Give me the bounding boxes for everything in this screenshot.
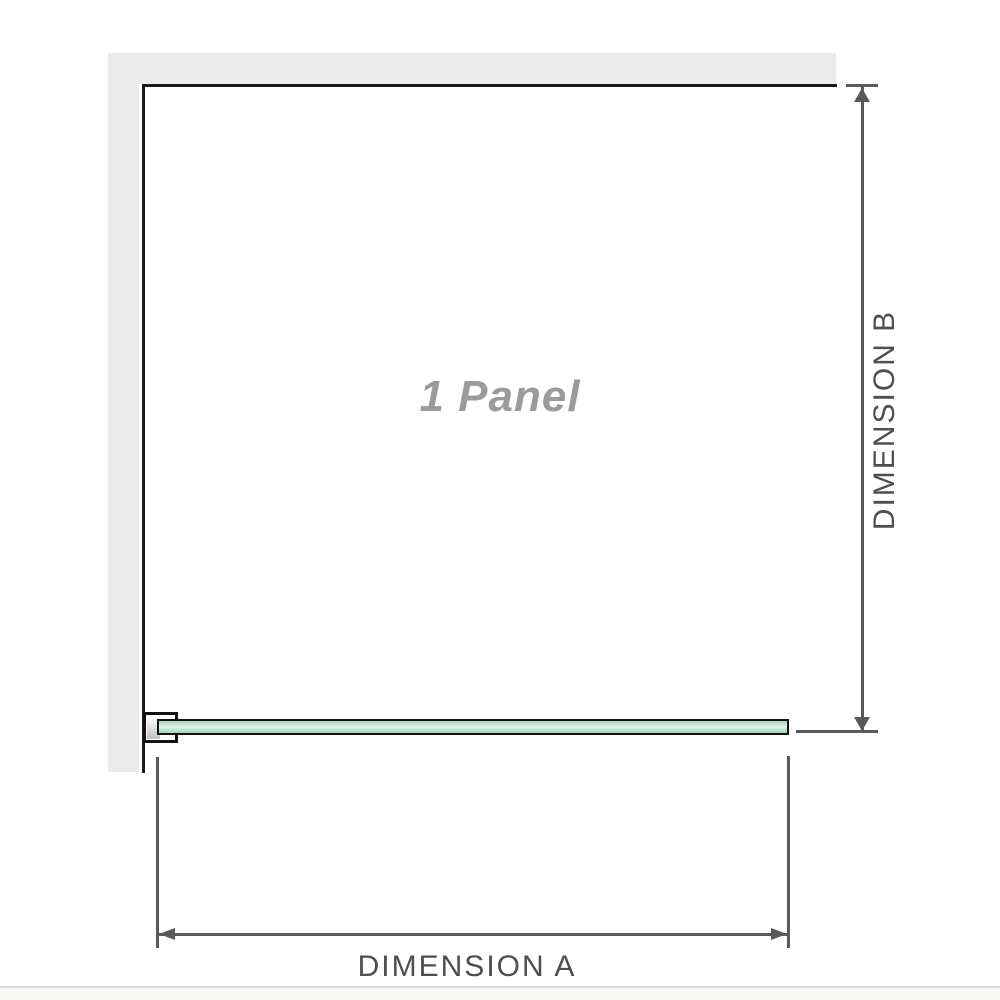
panel-frame-top-edge bbox=[142, 84, 837, 87]
dimension-a-extension-right bbox=[787, 756, 790, 948]
dimension-a-label: DIMENSION A bbox=[317, 950, 617, 984]
arrow-left-icon bbox=[159, 928, 175, 940]
wall-left-bar bbox=[108, 53, 139, 772]
footer-strip bbox=[0, 988, 1000, 1000]
panel-dimension-diagram: 1 Panel DIMENSION B DIMENSION A bbox=[0, 0, 1000, 1000]
wall-top-bar bbox=[108, 53, 836, 84]
dimension-a-line bbox=[159, 933, 788, 936]
arrow-down-icon bbox=[854, 717, 870, 731]
arrow-right-icon bbox=[771, 928, 787, 940]
dimension-b-label: DIMENSION B bbox=[869, 270, 901, 570]
dimension-b-line bbox=[861, 86, 864, 732]
glass-panel bbox=[157, 719, 789, 735]
dimension-a-extension-left bbox=[156, 757, 159, 948]
panel-frame-left-edge bbox=[142, 84, 145, 773]
arrow-up-icon bbox=[854, 88, 870, 102]
panel-count-label: 1 Panel bbox=[350, 372, 650, 422]
